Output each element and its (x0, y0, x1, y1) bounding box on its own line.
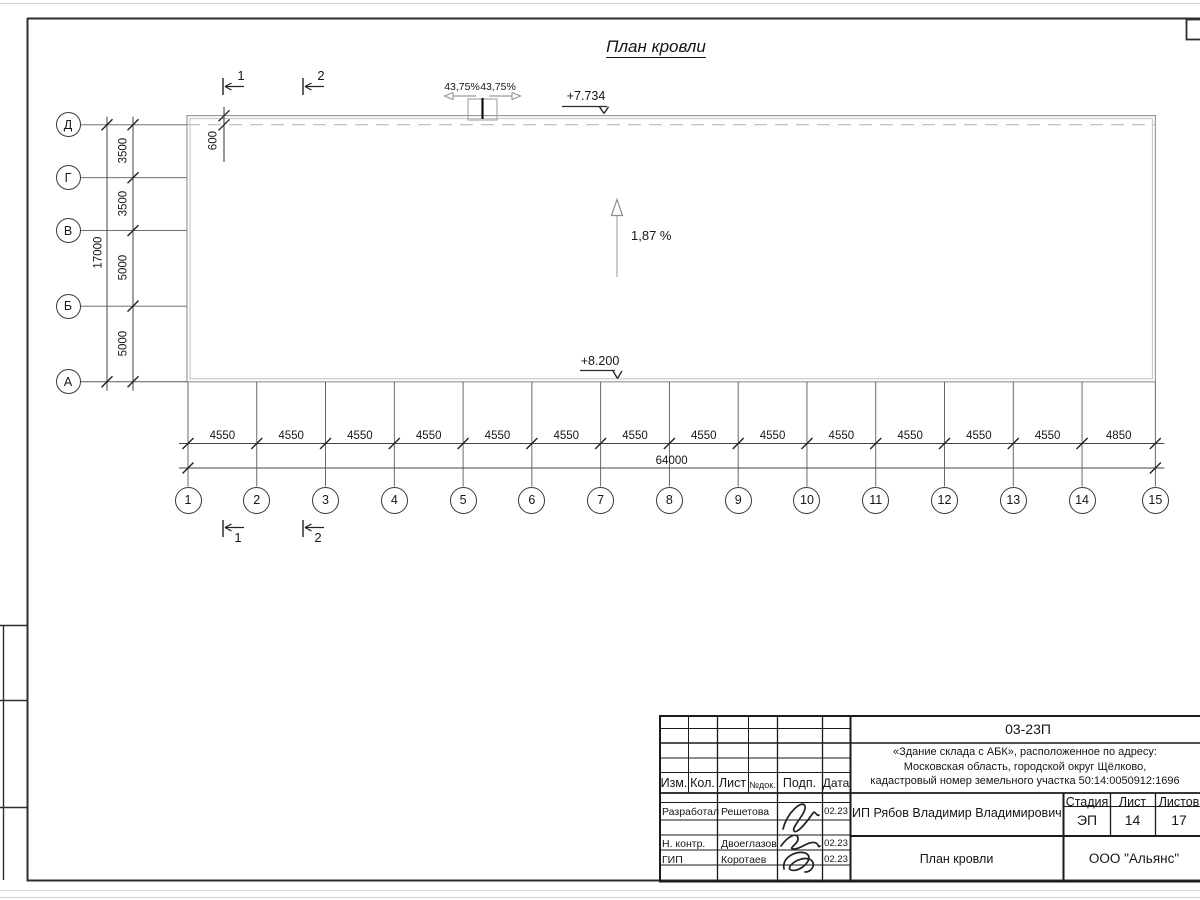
axis-bubble-bottom: 6 (518, 487, 545, 514)
axis-bubble-bottom: 10 (793, 487, 820, 514)
slope-arrowhead-right (512, 93, 521, 100)
axis-bubble-bottom: 14 (1069, 487, 1096, 514)
signer-name: Двоеглазов (721, 838, 777, 850)
main-slope-arrow (612, 200, 623, 278)
sheet-header: Лист (1111, 795, 1154, 809)
dim-text-left-segment: 3500 (117, 121, 130, 181)
signer-name: Решетова (721, 806, 769, 818)
dim-text-bottom-segment: 4550 (1014, 430, 1082, 443)
signer-role: ГИП (662, 854, 683, 866)
column-header-izm: Изм. (660, 776, 688, 790)
ridge-slope-right-label: 43,75% (470, 81, 526, 93)
dim-text-bottom-segment: 4550 (807, 430, 875, 443)
dim-text-bottom-segment: 4550 (945, 430, 1013, 443)
column-header-list: Лист (717, 776, 748, 790)
column-header-ndoc: №док. (748, 780, 777, 790)
project-address-line1: «Здание склада с АБК», расположенное по … (852, 746, 1198, 759)
axis-bubble-left: Г (56, 165, 81, 190)
axis-bubble-left: А (56, 369, 81, 394)
axis-bubble-bottom: 5 (450, 487, 477, 514)
signer-role: Н. контр. (662, 838, 705, 850)
axis-bubble-left: Б (56, 294, 81, 319)
section-mark-label-top: 1 (232, 69, 250, 84)
axis-bubble-bottom: 3 (312, 487, 339, 514)
generated-linework (80, 78, 1164, 537)
section-mark-label-top: 2 (312, 69, 330, 84)
sheet-title: План кровли (850, 852, 1063, 866)
signer-date: 02.23 (822, 807, 850, 818)
dim-text-bottom-segment: 4850 (1085, 430, 1153, 443)
signature-razrabotal (783, 804, 819, 831)
section-mark-label-bottom: 2 (309, 531, 327, 546)
signer-name: Коротаев (721, 854, 766, 866)
column-header-podp: Подп. (777, 776, 822, 790)
dim-text-bottom-segment: 4550 (601, 430, 669, 443)
signature-gip (784, 852, 814, 872)
signer-date: 02.23 (822, 839, 850, 850)
dim-text-bottom-segment: 4550 (463, 430, 531, 443)
drawing-sheet: План кровли +7.734 +8.200 1,87 % 43,75% … (0, 0, 1200, 900)
elevation-leaders (562, 107, 622, 379)
dim-text-bottom-segment: 4550 (257, 430, 325, 443)
signatures (778, 793, 822, 881)
axis-bubble-bottom: 12 (931, 487, 958, 514)
axis-bubble-bottom: 8 (656, 487, 683, 514)
axis-bubble-left: Д (56, 112, 81, 137)
signer-role: Разработал (662, 806, 719, 818)
axis-bubble-bottom: 4 (381, 487, 408, 514)
dim-text-left-segment: 3500 (117, 174, 130, 234)
dim-text-bottom-segment: 4550 (395, 430, 463, 443)
axis-bubble-bottom: 1 (175, 487, 202, 514)
axis-bubble-bottom: 13 (1000, 487, 1027, 514)
stage-header: Стадия (1064, 795, 1110, 809)
axis-bubble-bottom: 11 (862, 487, 889, 514)
dim-text-bottom-segment: 4550 (670, 430, 738, 443)
dim-text-bottom-segment: 4550 (532, 430, 600, 443)
sheets-header: Листов (1156, 795, 1200, 809)
dim-text-bottom-segment: 4550 (326, 430, 394, 443)
dim-text-bottom-segment: 4550 (876, 430, 944, 443)
dim-text-left-segment: 5000 (117, 314, 130, 374)
drawing-title: План кровли (541, 37, 771, 57)
dim-text-bottom-segment: 4550 (739, 430, 807, 443)
dim-text-left-total: 17000 (92, 223, 105, 283)
parapet-dim-label: 600 (207, 111, 220, 171)
left-margin-table (0, 625, 27, 880)
project-address-line2: Московская область, городской округ Щёлк… (852, 761, 1198, 774)
sheet-number: 14 (1111, 812, 1154, 828)
client-name: ИП Рябов Владимир Владимирович (852, 806, 1061, 820)
axis-bubble-bottom: 2 (243, 487, 270, 514)
dim-text-bottom-segment: 4550 (188, 430, 256, 443)
main-slope-label: 1,87 % (631, 229, 671, 244)
dim-text-bottom-total: 64000 (622, 455, 722, 468)
column-header-kol: Кол. (688, 776, 717, 790)
section-mark-label-bottom: 1 (229, 531, 247, 546)
axis-bubble-left: В (56, 218, 81, 243)
axis-bubble-bottom: 7 (587, 487, 614, 514)
dim-text-left-segment: 5000 (117, 238, 130, 298)
stage-value: ЭП (1064, 812, 1110, 828)
elevation-top-label: +7.734 (560, 89, 612, 103)
axis-bubble-bottom: 9 (725, 487, 752, 514)
doc-number: 03-23П (850, 721, 1200, 737)
signature-nkontr (781, 835, 820, 849)
slope-arrowhead-left (445, 93, 454, 100)
project-address-line3: кадастровый номер земельного участка 50:… (852, 775, 1198, 788)
elevation-bottom-label: +8.200 (574, 354, 626, 368)
axis-bubble-bottom: 15 (1142, 487, 1169, 514)
signer-date: 02.23 (822, 855, 850, 866)
frame-corner-box (1187, 20, 1200, 40)
column-header-data: Дата (822, 777, 850, 791)
sheets-total: 17 (1156, 812, 1200, 828)
roof-outline (187, 116, 1155, 382)
company-name: ООО "Альянс" (1064, 851, 1200, 867)
